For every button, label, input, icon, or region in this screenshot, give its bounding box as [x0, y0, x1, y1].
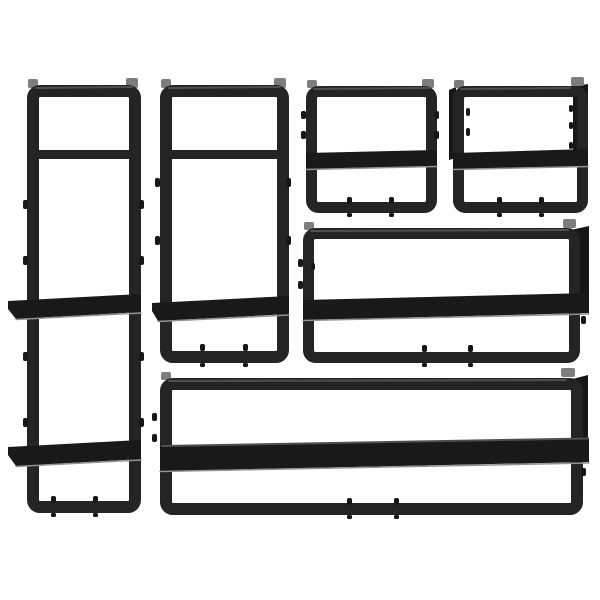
- stud: [389, 197, 394, 204]
- highlight-line: [311, 230, 568, 231]
- product-photo: [0, 0, 600, 600]
- stud: [23, 256, 28, 265]
- stud: [301, 111, 306, 119]
- stud: [584, 270, 589, 278]
- stud: [23, 200, 28, 209]
- stud: [539, 197, 544, 204]
- stud: [347, 515, 352, 519]
- stud: [581, 468, 586, 476]
- stud: [93, 513, 98, 517]
- stud: [434, 111, 439, 119]
- highlight-line: [461, 88, 570, 89]
- stud: [155, 236, 160, 245]
- stud: [51, 496, 56, 503]
- stud: [286, 236, 291, 245]
- stud: [155, 178, 160, 187]
- stud: [347, 498, 352, 505]
- shelf-board: [152, 296, 289, 321]
- stud: [389, 213, 394, 217]
- stud: [468, 345, 473, 352]
- stud: [539, 213, 544, 217]
- shelf-board: [306, 150, 437, 169]
- stud: [466, 128, 470, 136]
- crossbar: [171, 150, 283, 159]
- stud: [422, 345, 427, 352]
- stud: [584, 248, 589, 256]
- shelf-unit-wide-bottom: [152, 368, 589, 519]
- stud: [243, 363, 248, 367]
- shelf-board: [453, 149, 588, 169]
- frame: [459, 92, 583, 208]
- shelf-unit-wide-middle: [298, 219, 589, 367]
- stud: [51, 513, 56, 517]
- stud: [200, 344, 205, 351]
- shelf-unit-tall-left: [8, 78, 144, 517]
- stud: [152, 434, 157, 442]
- stud: [286, 178, 291, 187]
- stud: [497, 197, 502, 204]
- stud: [347, 213, 352, 217]
- stud: [497, 213, 502, 217]
- stud: [311, 263, 315, 270]
- stud: [139, 352, 144, 361]
- shelf-board: [303, 293, 589, 320]
- stud: [23, 352, 28, 361]
- crossbar: [38, 150, 130, 159]
- stud: [347, 197, 352, 204]
- stud: [243, 344, 248, 351]
- stud: [466, 108, 470, 116]
- stud: [569, 105, 573, 112]
- stud: [298, 259, 303, 267]
- stud: [569, 142, 573, 149]
- stud: [434, 131, 439, 139]
- stud: [394, 515, 399, 519]
- shelf-unit-small-right: [449, 77, 588, 217]
- stud: [139, 418, 144, 427]
- stud: [139, 256, 144, 265]
- mount-tab: [561, 368, 575, 377]
- stud: [298, 281, 303, 289]
- mount-tab: [563, 219, 576, 228]
- shelf-unit-small-left: [301, 79, 439, 217]
- stud: [200, 363, 205, 367]
- stud: [301, 131, 306, 139]
- highlight-line: [169, 380, 566, 381]
- stud: [581, 316, 586, 324]
- stud: [394, 498, 399, 505]
- highlight-line: [36, 87, 132, 88]
- stud: [152, 413, 157, 421]
- stud: [569, 122, 573, 129]
- shelf-set-illustration: [0, 0, 600, 600]
- highlight-line: [314, 88, 429, 89]
- stud: [93, 496, 98, 503]
- stud: [139, 200, 144, 209]
- frame: [312, 92, 432, 208]
- shelf-unit-tall-middle: [152, 78, 291, 367]
- stud: [468, 363, 473, 367]
- mount-tab: [571, 77, 584, 86]
- stud: [23, 418, 28, 427]
- stud: [422, 363, 427, 367]
- highlight-line: [169, 87, 280, 88]
